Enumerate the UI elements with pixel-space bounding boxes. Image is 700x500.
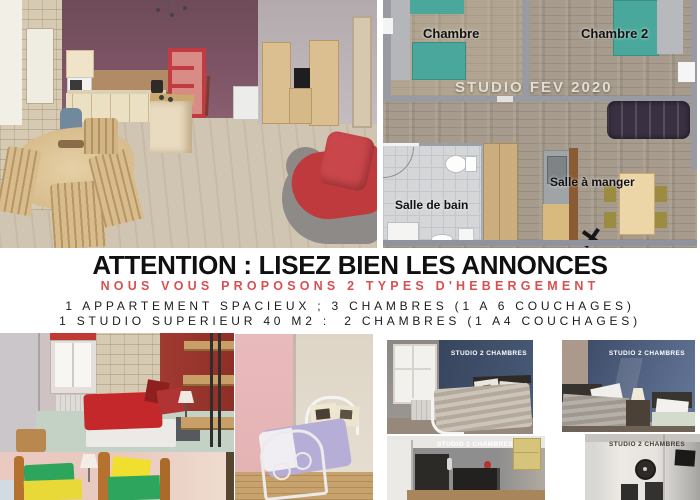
bed-post [14, 456, 24, 500]
shelf-plank [184, 341, 234, 351]
pillow-print [315, 408, 330, 419]
upper-cabinet [66, 50, 94, 78]
footboard-metal [431, 398, 464, 434]
counter [407, 490, 545, 500]
cabinet-shelf [514, 452, 538, 453]
dark-cabinet [415, 454, 449, 492]
studio-photo-label: STUDIO 2 CHAMBRES [451, 350, 527, 357]
divider-wall [569, 148, 578, 240]
shelf [172, 66, 194, 70]
window [393, 344, 437, 404]
sofa-bed [607, 101, 690, 139]
shelf-plank [183, 375, 234, 386]
door-opening [497, 96, 513, 102]
room2-label: Chambre 2 [581, 26, 648, 41]
bed-pillow [657, 0, 683, 54]
toilet-icon [445, 155, 467, 173]
sideboard [289, 88, 312, 124]
table-items [58, 140, 84, 148]
counter-wood [543, 204, 569, 240]
mullion [412, 346, 414, 398]
studio-lounge-photo: STUDIO 2 CHAMBRES [585, 434, 700, 500]
yellow-blanket [24, 479, 83, 500]
microwave-window [70, 80, 82, 90]
studio-photo-label: STUDIO 2 CHAMBRES [609, 350, 685, 357]
window-light [0, 0, 22, 125]
chair-dark [621, 484, 638, 500]
pendant-bulb [156, 8, 160, 12]
window [26, 28, 54, 104]
pendant-bulb [183, 6, 187, 10]
dark-edge [226, 452, 234, 500]
fridge [233, 86, 259, 120]
shelf-rail [218, 333, 221, 447]
room1-label: Chambre [423, 26, 479, 41]
mullion [395, 368, 431, 370]
shelf-rail [210, 333, 213, 447]
clock-face [643, 467, 647, 471]
window [50, 340, 97, 394]
footboard [258, 427, 329, 500]
floorplan: Chambre Chambre 2 STUDIO FEV 2020 Salle … [383, 0, 697, 248]
shelf [172, 84, 194, 88]
bed-teal [410, 0, 464, 14]
bed-teal [412, 42, 466, 80]
stool [16, 429, 46, 452]
wall-bottom [383, 240, 697, 246]
chair-plan [655, 212, 667, 228]
toilet-tank [465, 156, 477, 172]
dining-label: Salle à manger [550, 175, 635, 189]
wardrobe-split [499, 144, 500, 241]
shelf-plank [181, 417, 234, 430]
footboard-swirl [293, 451, 313, 471]
chair-plan [604, 212, 616, 228]
door-opening [678, 62, 695, 82]
twin-beds-photo [0, 452, 234, 500]
wall-right [691, 0, 697, 170]
wall-clock [635, 459, 656, 480]
chair-plan [655, 186, 667, 202]
studio-bedroom-photo: STUDIO 2 CHAMBRES [387, 340, 533, 434]
door-opening [383, 18, 393, 34]
bed-post [160, 458, 170, 500]
bed-headboard [390, 0, 410, 80]
pendant-bulb [170, 13, 174, 17]
studio-photo-label: STUDIO 2 CHAMBRES [437, 441, 513, 448]
lamp-shade [80, 454, 98, 468]
studio-kitchen-photo: STUDIO 2 CHAMBRES [387, 436, 545, 500]
tv [294, 68, 310, 88]
wardrobe [309, 40, 339, 126]
kitchen-island [150, 101, 192, 153]
listing-collage: { "colors": { "accent_red": "#d95050", "… [0, 0, 700, 500]
burner [159, 95, 164, 100]
subheadline: NOUS VOUS PROPOSONS 2 TYPES D'HEBERGEMEN… [0, 279, 700, 293]
chair-dark [645, 482, 663, 500]
burner [168, 97, 173, 102]
pendant-light [168, 0, 169, 14]
footboard-swirl [272, 461, 292, 481]
bottle [447, 458, 452, 470]
apartment-photo [0, 0, 377, 248]
studio-plan-label: STUDIO FEV 2020 [455, 79, 613, 96]
nightstand [626, 400, 650, 428]
headline: ATTENTION : LISEZ BIEN LES ANNONCES [0, 250, 700, 281]
wall-left [383, 0, 391, 96]
studio-photo-label: STUDIO 2 CHAMBRES [609, 441, 685, 448]
offer-line-1: 1 APPARTEMENT SPACIEUX ; 3 CHAMBRES (1 A… [0, 299, 700, 313]
bedroom-pink-photo [235, 334, 373, 500]
wardrobe [262, 42, 291, 124]
shower [387, 222, 419, 242]
floor [562, 426, 695, 432]
green-bedspread [108, 475, 161, 500]
bathroom-door [383, 143, 419, 146]
bathroom-label: Salle de bain [395, 198, 468, 212]
tv [674, 449, 695, 466]
wall-cabinet [513, 438, 541, 470]
lamp-stem [88, 468, 90, 482]
door-frame [352, 16, 372, 128]
coffee-maker [151, 80, 163, 93]
studio-twin-photo: STUDIO 2 CHAMBRES [562, 340, 695, 432]
wardrobe-plan [483, 143, 518, 242]
chair [84, 118, 118, 154]
bedroom-red-photo [0, 333, 234, 452]
offer-line-2: 1 STUDIO SUPERIEUR 40 M2 : 2 CHAMBRES (1… [0, 314, 700, 328]
microwave [453, 468, 500, 492]
mullion [72, 343, 74, 387]
